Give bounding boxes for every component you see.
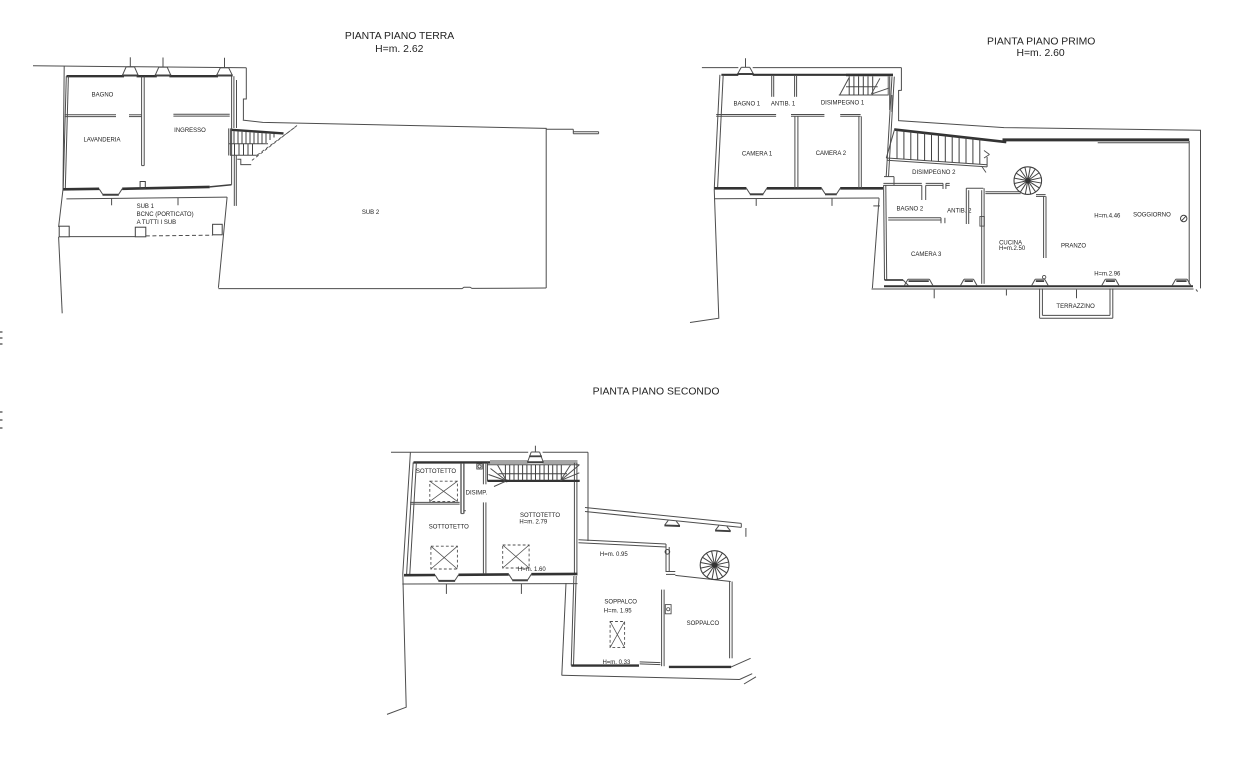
svg-text:SOTTOTETTO: SOTTOTETTO (520, 513, 560, 519)
svg-text:H=m. 0.95: H=m. 0.95 (600, 552, 629, 558)
svg-text:INGRESSO: INGRESSO (174, 128, 206, 134)
svg-text:BAGNO: BAGNO (92, 93, 114, 99)
svg-text:CAMERA 3: CAMERA 3 (911, 252, 942, 258)
svg-text:H=m. 2.60: H=m. 2.60 (1016, 48, 1064, 59)
svg-text:CAMERA 2: CAMERA 2 (816, 151, 847, 157)
svg-text:PIANTA PIANO TERRA: PIANTA PIANO TERRA (345, 31, 454, 42)
svg-text:ANTIB. 1: ANTIB. 1 (771, 101, 796, 107)
svg-text:SOPPALCO: SOPPALCO (687, 621, 720, 627)
svg-text:DISIMP.: DISIMP. (466, 491, 488, 497)
svg-text:DISIMPEGNO 2: DISIMPEGNO 2 (912, 170, 956, 176)
svg-text:H=m.4.46: H=m.4.46 (1094, 214, 1121, 220)
svg-text:SOTTOTETTO: SOTTOTETTO (416, 469, 456, 475)
svg-text:SUB 2: SUB 2 (362, 210, 380, 216)
svg-text:H=m. 2.79: H=m. 2.79 (519, 520, 548, 526)
svg-text:H=m.2.50: H=m.2.50 (999, 246, 1026, 252)
svg-text:SOGGIORNO: SOGGIORNO (1133, 213, 1171, 219)
svg-text:SOTTOTETTO: SOTTOTETTO (429, 525, 469, 531)
svg-text:PRANZO: PRANZO (1061, 243, 1086, 249)
svg-text:H=m.2.96: H=m.2.96 (1094, 272, 1121, 278)
svg-text:H=m. 1.95: H=m. 1.95 (604, 609, 633, 615)
svg-text:DISIMPEGNO 1: DISIMPEGNO 1 (821, 101, 865, 107)
svg-text:H=m. 1.60: H=m. 1.60 (518, 567, 547, 573)
svg-text:SOPPALCO: SOPPALCO (604, 600, 637, 606)
svg-text:CAMERA 1: CAMERA 1 (742, 152, 773, 158)
svg-text:H=m. 2.62: H=m. 2.62 (375, 44, 423, 55)
svg-text:LAVANDERIA: LAVANDERIA (83, 137, 120, 143)
svg-text:PIANTA PIANO SECONDO: PIANTA PIANO SECONDO (593, 387, 720, 398)
svg-text:BAGNO 2: BAGNO 2 (897, 207, 924, 213)
svg-text:SUB 1: SUB 1 (137, 204, 155, 210)
svg-text:TERRAZZINO: TERRAZZINO (1056, 304, 1095, 310)
svg-text:A TUTTI I SUB: A TUTTI I SUB (137, 220, 177, 226)
svg-text:PIANTA PIANO PRIMO: PIANTA PIANO PRIMO (987, 37, 1095, 48)
svg-text:BAGNO 1: BAGNO 1 (733, 101, 760, 107)
svg-text:BCNC (PORTICATO): BCNC (PORTICATO) (137, 212, 194, 218)
